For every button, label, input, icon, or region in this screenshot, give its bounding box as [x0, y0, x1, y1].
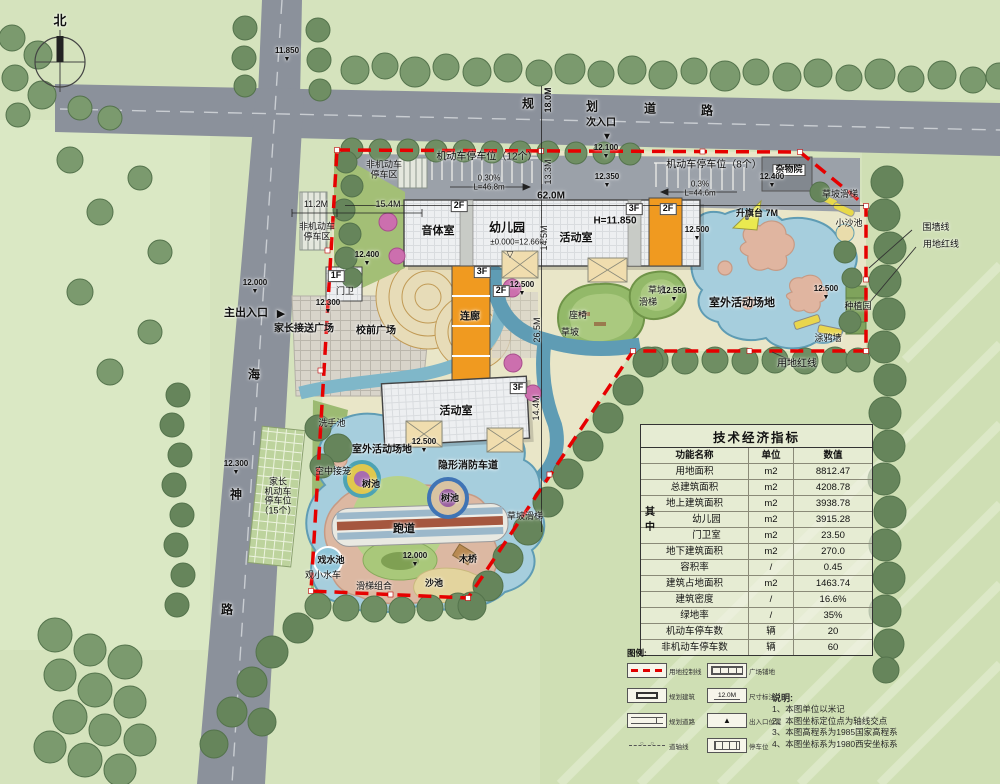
table-cell-name: 用地面积 [641, 464, 749, 479]
floor-label: 3F [626, 203, 643, 215]
main-entrance-label: 主出入口 [224, 308, 268, 320]
road-name-char: 路 [221, 604, 233, 617]
table-row: 用地面积m28812.47 [641, 464, 872, 480]
table-cell-name: 总建筑面积 [641, 480, 749, 495]
room-label: 活动室 [560, 233, 593, 245]
road-name-char: 规 [522, 98, 534, 111]
height-label: H=11.850 [593, 217, 636, 228]
entrance-location-icon [707, 713, 747, 728]
road-name-char: 道 [644, 103, 656, 116]
table-header-value: 数值 [794, 448, 872, 463]
table-header-unit: 单位 [749, 448, 794, 463]
planned-road-icon [627, 713, 667, 728]
parking-label: 机动车停车位（12个） [436, 153, 537, 164]
dimension-label: 13.3M [544, 159, 554, 184]
tree-pool-label: 树池 [441, 494, 459, 504]
table-cell-name: 建筑占地面积 [641, 576, 749, 591]
elevation-marker: 12.400 [760, 173, 784, 189]
annotation-label: 用地红线 [923, 240, 959, 250]
table-cell-value: 270.0 [794, 544, 872, 559]
table-cell-value: 8812.47 [794, 464, 872, 479]
table-row: 门卫室m223.50 [641, 528, 872, 544]
plaza-label: 校前广场 [356, 327, 396, 338]
road-name-char: 神 [230, 489, 242, 502]
secondary-entrance-label: 次入口 [586, 119, 616, 130]
table-cell-value: 23.50 [794, 528, 872, 543]
note-line: 4、本图坐标系为1980西安坐标系 [772, 739, 997, 751]
legend-item-label: 道轴线 [669, 741, 689, 751]
note-line: 3、本图高程系为1985国家高程系 [772, 727, 997, 739]
elevation-marker: 12.100 [594, 144, 618, 160]
floor-label: 2F [660, 203, 677, 215]
tree-pool-label: 树池 [362, 480, 380, 490]
elevation-marker: 12.300 [316, 299, 340, 315]
dimension-label: 26.5M [533, 317, 543, 342]
feature-label: 草坡滑梯 [822, 190, 858, 200]
table-cell-value: 20 [794, 624, 872, 639]
feature-label: 滑梯 [639, 298, 657, 308]
table-row: 幼儿园m23915.28 [641, 512, 872, 528]
feature-label: 观小水车 [305, 571, 341, 581]
legend-item: 广场铺地 [707, 663, 797, 678]
parking-label: 家长 机动车 停车位 （15个） [259, 478, 296, 517]
elevation-marker: 12.300 [224, 460, 248, 476]
slope-label: L=44.6m [684, 190, 715, 199]
table-group-label: 其中 [645, 505, 656, 535]
legend-item-label: 用地控制线 [669, 666, 702, 676]
parking-label: 机动车停车位（8个） [666, 161, 762, 172]
elevation-marker: 12.500 [412, 438, 436, 454]
table-cell-unit: / [749, 592, 794, 607]
dimension-label: 15.4M [375, 200, 400, 210]
table-cell-unit: m2 [749, 528, 794, 543]
annotation-label: 围墙线 [922, 223, 949, 233]
table-cell-value: 0.45 [794, 560, 872, 575]
table-body: 用地面积m28812.47总建筑面积m24208.78地上建筑面积m23938.… [641, 464, 872, 655]
feature-label: 沙池 [425, 579, 443, 589]
table-cell-value: 4208.78 [794, 480, 872, 495]
elevation-marker: 12.350 [595, 173, 619, 189]
dimension-label: 14.4M [532, 395, 542, 420]
table-cell-name: 地上建筑面积 [641, 496, 749, 511]
datum-label: ±0.000=12.660 [490, 239, 544, 248]
table-row: 地上建筑面积m23938.78 [641, 496, 872, 512]
table-row: 绿地率/35% [641, 608, 872, 624]
table-cell-name: 地下建筑面积 [641, 544, 749, 559]
elevation-marker: 12.000 [403, 552, 427, 568]
main-entrance-arrow-icon: ▶ [277, 309, 285, 321]
plaza-label: 家长接送广场 [274, 325, 334, 336]
annotation-label: 用地红线 [777, 360, 817, 371]
table-cell-value: 35% [794, 608, 872, 623]
table-cell-name: 幼儿园 [641, 512, 749, 527]
table-cell-name: 门卫室 [641, 528, 749, 543]
area-label: 非机动车 停车区 [366, 160, 402, 179]
site-plan-canvas: 北11.850规划道路18.0M次入口▼12.10012.35012.000主出… [0, 0, 1000, 784]
table-cell-value: 60 [794, 640, 872, 655]
table-cell-unit: m2 [749, 496, 794, 511]
table-row: 建筑占地面积m21463.74 [641, 576, 872, 592]
road-name-char: 划 [586, 101, 598, 114]
floor-label: 2F [493, 285, 510, 297]
elevation-marker: 12.000 [243, 279, 267, 295]
table-cell-unit: m2 [749, 544, 794, 559]
elevation-marker: 12.500 [510, 281, 534, 297]
tech-econ-table: 技术经济指标 功能名称 单位 数值 用地面积m28812.47总建筑面积m242… [640, 424, 873, 656]
road-axis-icon [627, 738, 667, 753]
feature-label: 戏水池 [317, 556, 344, 566]
table-title: 技术经济指标 [641, 425, 872, 448]
feature-label: 空中接笼 [315, 467, 351, 477]
elevation-marker: 12.550 [662, 287, 686, 303]
parking-space-icon [707, 738, 747, 753]
note-line: 2、本图坐标定位点为轴线交点 [772, 716, 997, 728]
fire-lane-label: 隐形消防车道 [438, 462, 498, 473]
planned-building-icon [627, 688, 667, 703]
table-cell-value: 1463.74 [794, 576, 872, 591]
table-cell-value: 3938.78 [794, 496, 872, 511]
area-label: 室外活动场地 [709, 298, 775, 310]
table-cell-unit: m2 [749, 512, 794, 527]
legend-item-label: 广场铺地 [749, 666, 775, 676]
room-label: 活动室 [440, 406, 473, 418]
floor-label: 1F [328, 270, 345, 282]
table-row: 机动车停车数辆20 [641, 624, 872, 640]
note-line: 1、本图单位以米记 [772, 704, 997, 716]
floor-label: 2F [451, 200, 468, 212]
road-name-char: 路 [701, 105, 713, 118]
feature-label: 滑梯组合 [356, 582, 392, 592]
elevation-marker: 12.500 [814, 285, 838, 301]
legend-item: 规划建筑 [627, 688, 707, 703]
table-row: 建筑密度/16.6% [641, 592, 872, 608]
table-cell-unit: 辆 [749, 624, 794, 639]
elevation-marker: 11.850 [275, 47, 299, 63]
building-label: 幼儿园 [489, 222, 525, 235]
feature-label: 木桥 [459, 555, 477, 565]
notes-title: 说明: [772, 691, 997, 704]
area-label: 非机动车 停车区 [299, 222, 335, 241]
datum-marker-icon: ▽ [507, 250, 514, 260]
north-label: 北 [53, 14, 66, 28]
feature-label: 洗手池 [318, 419, 345, 429]
slope-label: L=46.8m [473, 184, 504, 193]
table-cell-name: 绿地率 [641, 608, 749, 623]
legend-title: 图例: [627, 647, 797, 659]
table-header: 功能名称 单位 数值 [641, 448, 872, 464]
feature-label: 草坡滑梯 [507, 512, 543, 522]
track-label: 跑道 [393, 524, 415, 536]
floor-label: 3F [474, 266, 491, 278]
elevation-marker: 12.400 [355, 251, 379, 267]
dimension-label: 62.0M [537, 192, 565, 203]
room-label: 音体室 [422, 226, 455, 238]
legend-item-label: 规划道路 [669, 716, 695, 726]
elevation-marker: 12.500 [685, 226, 709, 242]
table-row: 地下建筑面积m2270.0 [641, 544, 872, 560]
table-row: 容积率/0.45 [641, 560, 872, 576]
site-control-line-icon [627, 663, 667, 678]
legend-item: 规划道路 [627, 713, 707, 728]
plaza-paving-icon [707, 663, 747, 678]
corridor-label: 连廊 [460, 313, 480, 324]
secondary-entrance-arrow-icon: ▼ [602, 133, 612, 144]
feature-label: 涂鸦墙 [814, 334, 841, 344]
table-cell-value: 16.6% [794, 592, 872, 607]
legend-item-label: 停车位 [749, 741, 769, 751]
feature-label: 座椅 [569, 311, 587, 321]
feature-label: 种植园 [844, 302, 871, 312]
table-cell-name: 容积率 [641, 560, 749, 575]
table-header-name: 功能名称 [641, 448, 749, 463]
dimension-label: 14.5M [540, 225, 550, 250]
flag-platform-label: 升旗台 7M [736, 209, 778, 219]
table-cell-unit: m2 [749, 464, 794, 479]
table-cell-unit: m2 [749, 576, 794, 591]
table-row: 总建筑面积m24208.78 [641, 480, 872, 496]
area-label: 室外活动场地 [352, 446, 412, 457]
road-name-char: 海 [248, 369, 260, 382]
dimension-label: 11.2M [304, 200, 328, 210]
table-cell-name: 建筑密度 [641, 592, 749, 607]
feature-label: 小沙池 [835, 219, 862, 229]
table-cell-name: 机动车停车数 [641, 624, 749, 639]
table-cell-value: 3915.28 [794, 512, 872, 527]
table-cell-unit: m2 [749, 480, 794, 495]
road-width-dim: 18.0M [544, 87, 554, 112]
legend-item: 道轴线 [627, 738, 707, 753]
notes: 说明: 1、本图单位以米记 2、本图坐标定位点为轴线交点 3、本图高程系为198… [772, 691, 997, 750]
dimension-sample-text: 12.0M [714, 692, 740, 700]
map-labels-layer: 北11.850规划道路18.0M次入口▼12.10012.35012.000主出… [0, 0, 1000, 784]
legend-item: 用地控制线 [627, 663, 707, 678]
feature-label: 草坡 [561, 328, 579, 338]
table-cell-unit: / [749, 560, 794, 575]
dimension-icon: 12.0M [707, 688, 747, 703]
floor-label: 3F [510, 382, 527, 394]
legend-item-label: 规划建筑 [669, 691, 695, 701]
gatehouse-label: 门卫 [336, 287, 354, 297]
table-cell-unit: / [749, 608, 794, 623]
